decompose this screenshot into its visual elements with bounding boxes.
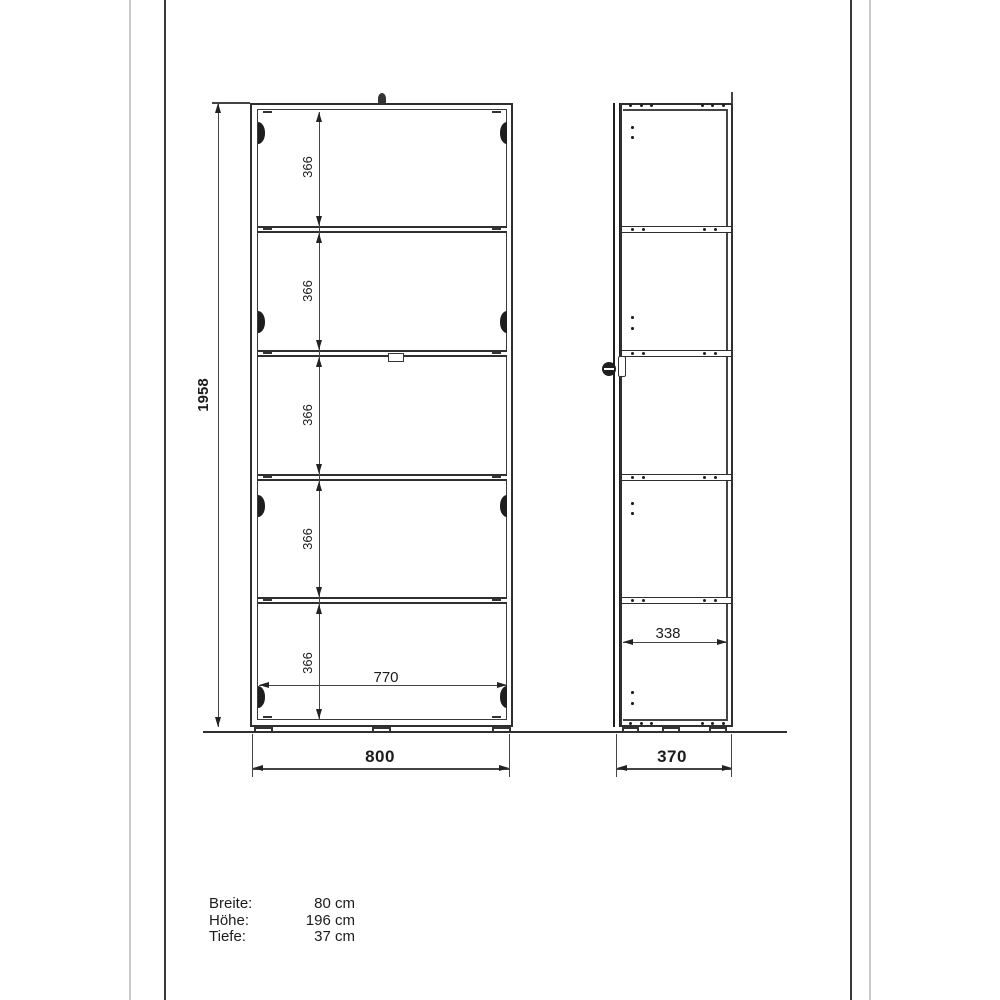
shelf-pin bbox=[492, 476, 501, 478]
dimension-line bbox=[253, 768, 509, 770]
spec-label: Tiefe: bbox=[209, 929, 277, 946]
screw-dot bbox=[631, 352, 634, 355]
dimension-label-800: 800 bbox=[355, 747, 405, 767]
arrowhead bbox=[316, 340, 322, 350]
screw-dot bbox=[642, 352, 645, 355]
screw-dot bbox=[711, 722, 714, 725]
pin-hole-dot bbox=[631, 126, 634, 129]
pin-hole-dot bbox=[631, 136, 634, 139]
shelf-pin bbox=[492, 716, 501, 718]
technical-drawing-sheet: 366 366 366 366 366 1958 770 800 bbox=[0, 0, 1000, 1000]
hinge-icon bbox=[500, 311, 507, 333]
shelf-pin bbox=[492, 599, 501, 601]
spec-value: 196 cm bbox=[277, 913, 355, 930]
screw-dot bbox=[714, 352, 717, 355]
shelf bbox=[258, 597, 507, 604]
screw-dot bbox=[703, 476, 706, 479]
arrowhead bbox=[253, 765, 263, 771]
screw-dot bbox=[631, 228, 634, 231]
arrowhead bbox=[316, 357, 322, 367]
arrowhead bbox=[316, 233, 322, 243]
pin-hole-dot bbox=[631, 316, 634, 319]
arrowhead bbox=[717, 639, 727, 645]
arrowhead bbox=[623, 639, 633, 645]
screw-dot bbox=[703, 352, 706, 355]
pin-hole-dot bbox=[631, 502, 634, 505]
dimension-label-338: 338 bbox=[648, 625, 688, 642]
arrowhead bbox=[215, 103, 221, 113]
screw-dot bbox=[703, 599, 706, 602]
dimension-line bbox=[218, 103, 219, 727]
pin-hole-dot bbox=[631, 327, 634, 330]
dimension-line bbox=[617, 768, 732, 770]
arrowhead bbox=[722, 765, 732, 771]
dimension-line bbox=[623, 642, 727, 643]
arrowhead bbox=[617, 765, 627, 771]
shelf-pin bbox=[492, 111, 501, 113]
ground-line bbox=[203, 731, 787, 733]
top-fitting-knob bbox=[378, 93, 386, 104]
spec-row-hoehe: Höhe: 196 cm bbox=[209, 913, 355, 930]
screw-dot bbox=[703, 228, 706, 231]
screw-dot bbox=[714, 228, 717, 231]
sheet-frame-left-dark bbox=[164, 0, 166, 1000]
specs-block: Breite: 80 cm Höhe: 196 cm Tiefe: 37 cm bbox=[209, 896, 355, 946]
arrowhead bbox=[499, 765, 509, 771]
screw-dot bbox=[629, 104, 632, 107]
dimension-label-370: 370 bbox=[647, 747, 697, 767]
arrowhead bbox=[259, 682, 269, 688]
dimension-label-366: 366 bbox=[301, 147, 315, 187]
pin-hole-dot bbox=[631, 691, 634, 694]
shelf-pin bbox=[492, 352, 501, 354]
screw-dot bbox=[650, 722, 653, 725]
spec-value: 80 cm bbox=[277, 896, 355, 913]
shelf-pin bbox=[263, 352, 272, 354]
pin-hole-dot bbox=[631, 702, 634, 705]
shelf-pin bbox=[263, 716, 272, 718]
spec-row-tiefe: Tiefe: 37 cm bbox=[209, 929, 355, 946]
screw-dot bbox=[722, 722, 725, 725]
dimension-line bbox=[319, 112, 320, 719]
shelf-pin bbox=[492, 228, 501, 230]
spec-label: Höhe: bbox=[209, 913, 277, 930]
arrowhead bbox=[316, 481, 322, 491]
screw-dot bbox=[640, 104, 643, 107]
spec-value: 37 cm bbox=[277, 929, 355, 946]
foot bbox=[622, 727, 639, 733]
screw-dot bbox=[642, 228, 645, 231]
sheet-frame-right-dark bbox=[850, 0, 852, 1000]
side-door-edge bbox=[613, 103, 620, 727]
dimension-label-366: 366 bbox=[301, 271, 315, 311]
shelf bbox=[258, 226, 507, 233]
dimension-label-366: 366 bbox=[301, 643, 315, 683]
lock-plate bbox=[618, 356, 626, 377]
spec-label: Breite: bbox=[209, 896, 277, 913]
dimension-label-770: 770 bbox=[366, 669, 406, 686]
lock-knob-slot bbox=[604, 368, 614, 370]
hinge-icon bbox=[500, 122, 507, 144]
screw-dot bbox=[722, 104, 725, 107]
screw-dot bbox=[714, 476, 717, 479]
dimension-label-366: 366 bbox=[301, 519, 315, 559]
shelf-pin bbox=[263, 111, 272, 113]
arrowhead bbox=[316, 604, 322, 614]
screw-dot bbox=[642, 599, 645, 602]
arrowhead bbox=[316, 464, 322, 474]
foot bbox=[662, 727, 680, 733]
hinge-icon bbox=[500, 686, 507, 708]
screw-dot bbox=[701, 104, 704, 107]
sheet-frame-right-light bbox=[869, 0, 871, 1000]
side-top-rear-tick bbox=[731, 92, 733, 104]
screw-dot bbox=[631, 476, 634, 479]
screw-dot bbox=[714, 599, 717, 602]
screw-dot bbox=[711, 104, 714, 107]
side-back-panel-line bbox=[726, 110, 728, 720]
arrowhead bbox=[316, 112, 322, 122]
shelf-handle-fitting bbox=[388, 353, 404, 362]
shelf-pin bbox=[263, 476, 272, 478]
screw-dot bbox=[701, 722, 704, 725]
arrowhead bbox=[316, 587, 322, 597]
shelf-pin bbox=[263, 228, 272, 230]
front-inner-body bbox=[257, 109, 507, 720]
pin-hole-dot bbox=[631, 512, 634, 515]
sheet-frame-left-light bbox=[129, 0, 131, 1000]
hinge-icon bbox=[500, 495, 507, 517]
side-top-panel-line bbox=[623, 109, 728, 111]
shelf-pin bbox=[263, 599, 272, 601]
arrowhead bbox=[497, 682, 507, 688]
arrowhead bbox=[316, 216, 322, 226]
screw-dot bbox=[631, 599, 634, 602]
side-bottom-panel-line bbox=[623, 719, 728, 721]
shelf bbox=[258, 350, 507, 357]
extension-line bbox=[509, 734, 510, 777]
foot bbox=[709, 727, 727, 733]
dimension-label-1958: 1958 bbox=[196, 370, 212, 420]
dimension-label-366: 366 bbox=[301, 395, 315, 435]
shelf bbox=[258, 474, 507, 481]
screw-dot bbox=[650, 104, 653, 107]
arrowhead bbox=[215, 717, 221, 727]
screw-dot bbox=[629, 722, 632, 725]
screw-dot bbox=[640, 722, 643, 725]
arrowhead bbox=[316, 709, 322, 719]
spec-row-breite: Breite: 80 cm bbox=[209, 896, 355, 913]
screw-dot bbox=[642, 476, 645, 479]
